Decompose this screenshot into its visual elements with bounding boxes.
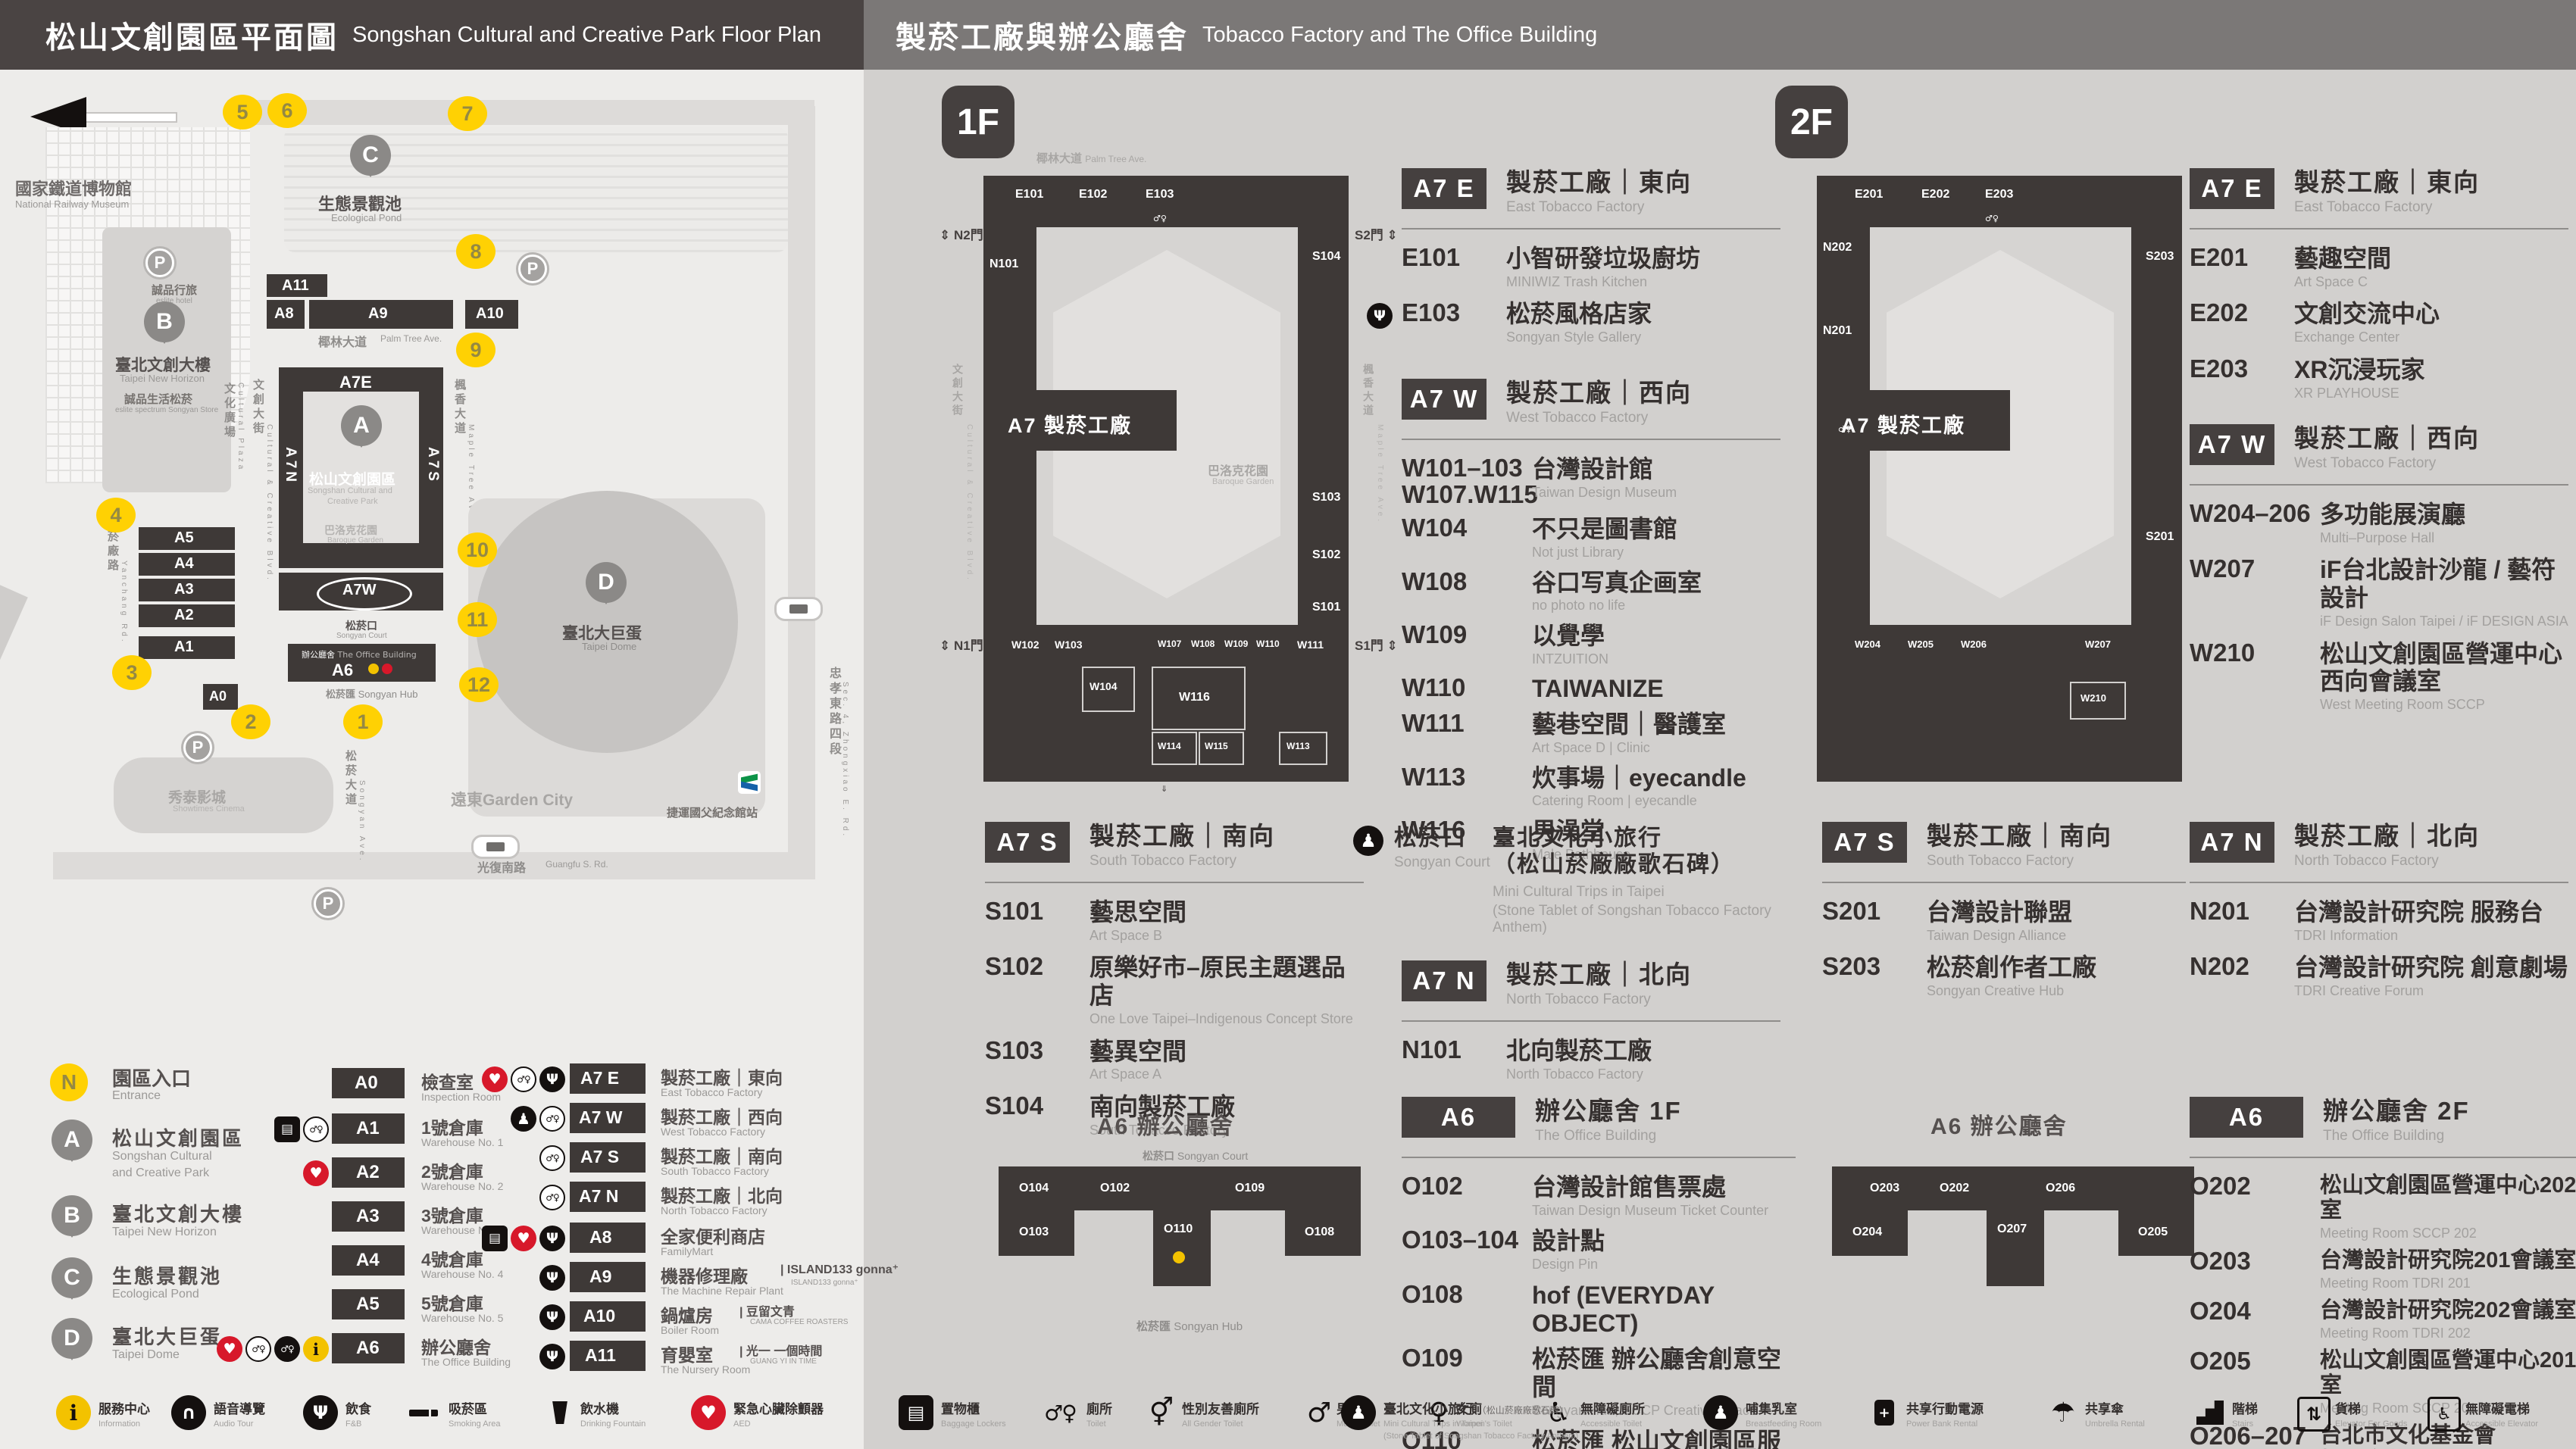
baroque-garden-en: Baroque Garden	[327, 536, 383, 545]
room-label: E203	[1985, 188, 2013, 201]
section-title-en: South Tobacco Factory	[1927, 853, 2112, 870]
directory-item: W111 藝巷空間｜醫護室Art Space D | Clinic	[1402, 710, 1780, 756]
divider	[1822, 882, 2186, 883]
legend-a7n-en: North Tobacco Factory	[661, 1204, 767, 1216]
room-label: O109	[1235, 1182, 1265, 1195]
directory-item: W104 不只是圖書館Not just Library	[1402, 515, 1780, 561]
pin-a: A	[341, 405, 382, 446]
garden-city-label: 遠東Garden City	[451, 788, 573, 810]
directory-item: W109 以覺學INTZUITION	[1402, 622, 1780, 667]
railway-museum-label-en: National Railway Museum	[15, 198, 129, 210]
baggage-lockers-icon	[274, 1116, 300, 1142]
parking-icon: P	[145, 248, 174, 277]
section-badge: A7 E	[1402, 168, 1487, 209]
directory-item: S201 台灣設計聯盟Taiwan Design Alliance	[1822, 898, 2186, 944]
directory-item: S101 藝思空間Art Space B	[985, 898, 1364, 944]
legend-entrance-badge: N	[50, 1063, 88, 1101]
plan2-a7-label: A7 製菸工廠	[1841, 409, 1965, 439]
baggage-lockers-icon	[482, 1226, 508, 1251]
legend-a5-code: A5	[356, 1294, 380, 1315]
plan1-palm-ave: 椰林大道 Palm Tree Ave.	[1036, 150, 1146, 166]
legend-a11-en: The Nursery Room	[661, 1363, 750, 1376]
mini-cultural-trip-icon: ♟	[1341, 1395, 1376, 1430]
strip-label-en: Umbrella Rental	[2085, 1419, 2145, 1429]
room-zh: 藝思空間	[1089, 898, 1186, 926]
strip-label-zh: 貨梯	[2335, 1398, 2361, 1417]
plan2-toilet-icon: ♂♀	[1838, 424, 1852, 434]
building-a7e-label: A7E	[339, 373, 372, 392]
room-en: Art Space A	[1089, 1066, 1186, 1083]
pond-label-en: Ecological Pond	[331, 212, 402, 223]
entrance-8: 8	[456, 234, 496, 269]
strip-label-zh: 緊急心臟除顫器	[733, 1398, 824, 1417]
room-code: N101	[1402, 1037, 1506, 1082]
room-zh: 谷口写真企画室	[1532, 569, 1702, 597]
entrance-1: 1	[343, 704, 383, 739]
cultural-plaza-en: Cultural Plaza	[236, 383, 245, 472]
entrance-9: 9	[456, 333, 496, 367]
zhongxiao-rd-en: Sec. 4, Zhongxiao E. Rd.	[841, 682, 849, 838]
room-zh: 台灣設計研究院201會議室	[2320, 1248, 2576, 1273]
room-en: Exchange Center	[2294, 329, 2440, 346]
audio-tour-icon: ∩	[171, 1395, 206, 1430]
directory-item: S203 松菸創作者工廠Songyan Creative Hub	[1822, 954, 2186, 999]
room-en: Art Space D | Clinic	[1532, 740, 1726, 757]
room-label: O104	[1019, 1182, 1049, 1195]
legend-a10-code: A10	[583, 1306, 615, 1326]
strip-label-zh: 臺北文化小旅行 （松山菸廠廠歌石碑）	[1383, 1398, 1568, 1417]
strip-label-zh: 性別友善廁所	[1182, 1398, 1259, 1417]
bus-stop-icon	[471, 835, 520, 859]
room-label: W204	[1855, 639, 1880, 650]
breastfeeding-room-icon: ♟	[1703, 1395, 1738, 1430]
map-court-en: Songyan Court	[336, 632, 387, 640]
entrance-5: 5	[223, 95, 262, 130]
strip-label-en: Baggage Lockers	[941, 1419, 1006, 1429]
room-code: W207	[2190, 556, 2320, 629]
cultural-trip-icon	[511, 1106, 536, 1132]
room-zh: 台灣設計研究院202會議室	[2320, 1298, 2576, 1323]
divider	[985, 882, 1364, 883]
drinking-fountain-icon	[542, 1395, 577, 1430]
room-en: TDRI Information	[2294, 928, 2543, 945]
legend-a11-zh: 育嬰室	[661, 1341, 713, 1366]
room-en: Art Space C	[2294, 274, 2391, 291]
room-code: O102	[1402, 1173, 1532, 1219]
songyan-ave-en: Songyan Ave.	[358, 780, 366, 863]
room-label: E201	[1855, 188, 1883, 201]
railway-museum-label-zh: 國家鐵道博物館	[15, 176, 132, 200]
legend-a7w-code: A7 W	[579, 1107, 623, 1128]
section-badge: A6	[2190, 1097, 2303, 1138]
toilet-icon	[539, 1145, 565, 1171]
section-title-zh: 製菸工廠｜西向	[1506, 379, 1692, 408]
entrance-12: 12	[459, 667, 499, 702]
legend-a9-code: A9	[589, 1266, 611, 1287]
divider	[1402, 228, 1780, 230]
sccp-label-zh: 松山文創園區	[309, 468, 395, 489]
strip-label-zh: 共享行動電源	[1906, 1398, 1984, 1417]
section-title-zh: 製菸工廠｜南向	[1927, 822, 2112, 851]
plan1-garden-en: Baroque Garden	[1212, 477, 1274, 486]
room-label: W116	[1179, 691, 1210, 704]
room-label: O108	[1305, 1226, 1334, 1239]
room-en: Catering Room | eyecandle	[1532, 793, 1746, 810]
legend-a1-code: A1	[356, 1118, 380, 1139]
cinema-zh: 秀泰影城	[168, 786, 226, 807]
room-code: O204	[2190, 1298, 2320, 1341]
room-code: S203	[1822, 954, 1927, 999]
room-code: S101	[985, 898, 1089, 944]
pin-c: C	[350, 135, 391, 176]
dome-en: Taipei Dome	[582, 641, 636, 652]
aed-icon	[382, 664, 392, 674]
baggage-lockers-icon: ▤	[899, 1395, 933, 1430]
legend-a-en1: Songshan Cultural	[112, 1150, 212, 1163]
room-label: W113	[1286, 741, 1310, 751]
cinema-en: Showtimes Cinema	[173, 804, 245, 814]
room-label: N202	[1823, 241, 1852, 255]
room-label: W102	[1011, 639, 1039, 651]
strip-label-en: Breastfeeding Room	[1746, 1419, 1821, 1429]
a6-1f-hub: 松菸匯 Songyan Hub	[1136, 1318, 1243, 1334]
section-badge: A7 S	[985, 822, 1070, 863]
room-zh: 松山文創園區營運中心201會議室	[2320, 1348, 2576, 1399]
food-icon	[539, 1265, 565, 1291]
legend-c-zh: 生態景觀池	[112, 1261, 222, 1289]
building-a11-label: A11	[282, 277, 309, 295]
room-label: W108	[1191, 639, 1215, 649]
room-code: W104	[1402, 515, 1532, 561]
room-code: E203	[2190, 356, 2294, 401]
room-code: N202	[2190, 954, 2294, 999]
directory-item: N101 北向製菸工廠North Tobacco Factory	[1402, 1037, 1780, 1082]
legend-a4-zh: 4號倉庫	[421, 1245, 483, 1271]
section-badge: A7 W	[1402, 379, 1487, 420]
parking-icon: P	[314, 889, 342, 918]
room-code: O108	[1402, 1282, 1532, 1338]
entrance-7: 7	[448, 96, 487, 131]
room-label: S103	[1312, 491, 1340, 504]
plan1-a7-label: A7 製菸工廠	[1008, 409, 1132, 439]
directory-item: E101 小智研發垃圾廚坊MINIWIZ Trash Kitchen	[1402, 245, 1780, 290]
stairs-icon	[2193, 1395, 2227, 1430]
legend-a7s-icons	[539, 1145, 565, 1171]
legend-a4-code: A4	[356, 1250, 380, 1271]
a6-1f-bar	[999, 1166, 1361, 1210]
information-icon: i	[56, 1395, 91, 1430]
legend-a7s-code: A7 S	[580, 1147, 619, 1167]
room-zh: hof (EVERYDAY OBJECT)	[1532, 1282, 1796, 1338]
room-code: W108	[1402, 569, 1532, 614]
legend-a1-zh: 1號倉庫	[421, 1113, 483, 1139]
room-label: E103	[1146, 188, 1174, 201]
room-en: Taiwan Design Alliance	[1927, 928, 2072, 945]
section-title-en: North Tobacco Factory	[1506, 992, 1692, 1008]
sccp-label-en1: Songshan Cultural and	[308, 486, 392, 495]
room-label: W111	[1297, 639, 1324, 651]
room-en: One Love Taipei–Indigenous Concept Store	[1089, 1011, 1364, 1028]
divider	[1402, 1157, 1796, 1158]
legend-a1-en: Warehouse No. 1	[421, 1136, 503, 1148]
section-title-en: East Tobacco Factory	[1506, 199, 1692, 216]
legend-a7w-zh: 製菸工廠｜西向	[661, 1103, 783, 1129]
a6-1f-court: 松菸口 Songyan Court	[1143, 1148, 1248, 1163]
room-en: TDRI Creative Forum	[2294, 983, 2568, 1000]
toilet-icon	[539, 1185, 565, 1210]
directory-item: O204 台灣設計研究院202會議室Meeting Room TDRI 202	[2190, 1298, 2576, 1341]
toilet-icon	[303, 1116, 329, 1142]
a6-1f-stub	[1153, 1210, 1211, 1286]
room-code: W210	[2190, 640, 2320, 714]
room-label: S102	[1312, 548, 1340, 562]
directory-item: O103–104 設計點Design Pin	[1402, 1227, 1796, 1273]
building-a8-label: A8	[274, 305, 294, 323]
room-label: W114	[1158, 741, 1181, 751]
legend-a8-icons	[482, 1226, 565, 1251]
mens-toilet-icon: ♂	[1302, 1395, 1336, 1430]
legend-a4-en: Warehouse No. 4	[421, 1268, 503, 1280]
section-title-zh: 製菸工廠｜北向	[1506, 960, 1692, 989]
cultural-blvd-zh: 文創大街	[250, 379, 266, 436]
room-code: E101	[1402, 245, 1506, 290]
directory-item: N202 台灣設計研究院 創意劇場TDRI Creative Forum	[2190, 954, 2568, 999]
legend-a3-zh: 3號倉庫	[421, 1201, 483, 1227]
legend-a6-en: The Office Building	[421, 1356, 511, 1368]
goods-elevator-icon: ⇅	[2297, 1397, 2331, 1432]
plan1-cultural-blvd-en: Cultural & Creative Blvd.	[965, 424, 974, 582]
section-a7e-1f: A7 E 製菸工廠｜東向 East Tobacco Factory E101 小…	[1402, 168, 1780, 356]
strip-label-en: AED	[733, 1419, 751, 1429]
legend-a9-sub-en: ISLAND133 gonna⁺	[791, 1279, 858, 1287]
room-label: W107	[1158, 639, 1181, 649]
divider	[2190, 882, 2568, 883]
directory-item: W108 谷口写真企画室no photo no life	[1402, 569, 1780, 614]
room-zh: 台灣設計館售票處	[1532, 1173, 1768, 1201]
parking-icon: P	[183, 733, 212, 762]
section-title-en: The Office Building	[2323, 1128, 2470, 1145]
room-en: Art Space B	[1089, 928, 1186, 945]
legend-d-zh: 臺北大巨蛋	[112, 1322, 222, 1350]
room-zh: 文創交流中心	[2294, 300, 2440, 328]
directory-item: O202 松山文創園區營運中心202會議室Meeting Room SCCP 2…	[2190, 1173, 2576, 1241]
room-label: N101	[989, 258, 1018, 271]
entrance-2: 2	[231, 704, 270, 739]
left-title-en: Songshan Cultural and Creative Park Floo…	[352, 23, 821, 48]
strip-label-zh: 語音導覽	[214, 1398, 265, 1417]
right-title-zh: 製菸工廠與辦公廳舍	[896, 13, 1189, 57]
room-code: W101–103W107.W115	[1402, 455, 1532, 507]
aed-icon	[482, 1066, 508, 1092]
legend-a6-zh: 辦公廳舍	[421, 1333, 491, 1359]
directory-item: O108 hof (EVERYDAY OBJECT)	[1402, 1282, 1796, 1338]
directory-item: W207 iF台北設計沙龍 / 藝符設計iF Design Salon Taip…	[2190, 556, 2568, 629]
plan1-garden-zh: 巴洛克花園	[1208, 461, 1268, 479]
room-zh: 藝異空間	[1089, 1038, 1186, 1066]
toilet-icon	[274, 1336, 300, 1362]
room-en: no photo no life	[1532, 598, 1702, 614]
room-zh: 松山文創園區營運中心202會議室	[2320, 1173, 2576, 1224]
legend-a10-sub: | 豆留文青	[739, 1301, 795, 1319]
room-label: W110	[1256, 639, 1280, 649]
room-label: E101	[1015, 188, 1043, 201]
legend-a0-en: Inspection Room	[421, 1091, 501, 1103]
room-label: O206	[2046, 1182, 2075, 1195]
room-code: W204–206	[2190, 501, 2320, 546]
power-bank-icon: +	[1867, 1395, 1902, 1430]
all-gender-toilet-icon: ⚥	[1144, 1395, 1179, 1430]
section-a7n-2f: A7 N 製菸工廠｜北向 North Tobacco Factory N201 …	[2190, 822, 2568, 1010]
legend-a9-icons	[539, 1265, 565, 1291]
building-a9-label: A9	[368, 305, 388, 323]
strip-label-en: Drinking Fountain	[580, 1419, 646, 1429]
aed-icon	[303, 1160, 329, 1186]
entrance-4: 4	[96, 498, 136, 532]
directory-item: W204–206 多功能展演廳Multi–Purpose Hall	[2190, 501, 2568, 546]
room-zh: XR沉浸玩家	[2294, 356, 2424, 384]
divider	[2190, 228, 2568, 230]
legend-a6-icons	[217, 1336, 329, 1362]
gate-n2: ⇕ N2門	[939, 224, 983, 243]
legend-a8-en: FamilyMart	[661, 1245, 713, 1257]
palm-ave-en: Palm Tree Ave.	[380, 333, 442, 344]
palm-ave-zh: 椰林大道	[318, 332, 367, 350]
gate-s1: S1門 ⇕	[1355, 635, 1398, 654]
plan1-maple-ave-en: Maple Tree Ave.	[1376, 424, 1384, 524]
legend-a7n-code: A7 N	[579, 1186, 618, 1207]
cultural-trip-icon	[1353, 826, 1383, 856]
directory-item: E201 藝趣空間Art Space C	[2190, 245, 2568, 290]
legend-pin-b: B	[52, 1195, 92, 1236]
legend-pin-d: D	[52, 1318, 92, 1359]
left-title-zh: 松山文創園區平面圖	[45, 13, 339, 57]
legend-a11-code: A11	[585, 1345, 616, 1366]
room-label: W104	[1089, 680, 1118, 692]
section-title-zh: 辦公廳舍 1F	[1535, 1097, 1682, 1126]
room-en: Design Pin	[1532, 1257, 1605, 1273]
info-icon	[368, 664, 379, 674]
strip-label-zh: 吸菸區	[449, 1398, 487, 1417]
room-zh: 小智研發垃圾廚坊	[1506, 245, 1700, 273]
food-icon	[539, 1304, 565, 1330]
sccp-label-en2: Creative Park	[327, 497, 378, 506]
strip-label-en: Elevator For Goods	[2335, 1419, 2407, 1429]
room-en: North Tobacco Factory	[1506, 1066, 1652, 1083]
room-en: iF Design Salon Taipei / iF DESIGN ASIA	[2320, 614, 2568, 630]
room-code: S102	[985, 954, 1089, 1027]
strip-label-zh: 服務中心	[98, 1398, 150, 1417]
umbrella-rental-icon: ☂	[2046, 1395, 2080, 1430]
right-title-en: Tobacco Factory and The Office Building	[1202, 23, 1597, 48]
legend-a0-zh: 檢查室	[421, 1068, 474, 1094]
section-badge: A7 W	[2190, 424, 2274, 465]
food-icon: Ψ	[303, 1395, 338, 1430]
legend-a8-zh: 全家便利商店	[661, 1223, 765, 1248]
building-a0-label: A0	[209, 689, 227, 704]
strip-label-zh: 無障礙廁所	[1580, 1398, 1645, 1417]
section-title-en: North Tobacco Factory	[2294, 853, 2480, 870]
legend-a7n-zh: 製菸工廠｜北向	[661, 1182, 783, 1207]
directory-item: W210 松山文創園區營運中心西向會議室West Meeting Room SC…	[2190, 640, 2568, 714]
section-title-zh: 製菸工廠｜南向	[1089, 822, 1275, 851]
accessible-elevator-icon: ♿	[2428, 1397, 2461, 1432]
entrance-10: 10	[458, 532, 497, 567]
right-header: 製菸工廠與辦公廳舍 Tobacco Factory and The Office…	[864, 0, 2576, 70]
room-code: S201	[1822, 898, 1927, 944]
room-zh: 松菸創作者工廠	[1927, 954, 2096, 982]
strip-label-zh: 飲水機	[580, 1398, 619, 1417]
building-a4-label: A4	[174, 555, 194, 573]
eslite-hotel-zh: 誠品行旅	[152, 282, 197, 298]
room-zh: 多功能展演廳	[2320, 501, 2465, 529]
plan1-maple-ave: 楓香大道	[1361, 364, 1376, 418]
legend-a2-zh: 2號倉庫	[421, 1157, 483, 1183]
section-a7s-2f: A7 S 製菸工廠｜南向 South Tobacco Factory S201 …	[1822, 822, 2186, 1010]
legend-b-en: Taipei New Horizon	[112, 1226, 217, 1239]
legend-a9-en: The Machine Repair Plant	[661, 1285, 783, 1297]
toilet-icon: ♂♀	[1043, 1395, 1077, 1430]
maple-ave-zh: 楓香大道	[452, 379, 467, 436]
room-label: O102	[1100, 1182, 1130, 1195]
room-label: S201	[2146, 530, 2174, 544]
section-a7w-2f: A7 W 製菸工廠｜西向 West Tobacco Factory W204–2…	[2190, 424, 2568, 723]
room-en: Not just Library	[1532, 545, 1677, 561]
new-horizon-en: Taipei New Horizon	[120, 373, 205, 384]
room-zh: 松菸匯 辦公廳舍創意空間	[1532, 1345, 1796, 1401]
legend-a7e-en: East Tobacco Factory	[661, 1086, 762, 1098]
room-label: W206	[1961, 639, 1987, 650]
strip-label-en: Toilet	[1086, 1419, 1106, 1429]
legend-a7s-zh: 製菸工廠｜南向	[661, 1142, 783, 1168]
toilet-icon	[539, 1106, 565, 1132]
room-label: O205	[2138, 1226, 2168, 1239]
room-code: O203	[2190, 1248, 2320, 1291]
legend-a2-icons	[303, 1160, 329, 1186]
room-label: O103	[1019, 1226, 1049, 1239]
room-label: O203	[1870, 1182, 1899, 1195]
legend-a7s-en: South Tobacco Factory	[661, 1165, 769, 1177]
directory-item: E103 松菸風格店家Songyan Style Gallery	[1402, 300, 1780, 345]
section-a6-1f: A6 辦公廳舍 1F The Office Building O102 台灣設計…	[1402, 1097, 1796, 1449]
room-label: E102	[1079, 188, 1107, 201]
aed-icon	[511, 1226, 536, 1251]
yanchang-rd-zh: 菸廠路	[105, 530, 120, 573]
room-code: W109	[1402, 622, 1532, 667]
room-zh: 台灣設計館	[1532, 455, 1677, 483]
legend-a3-code: A3	[356, 1206, 380, 1227]
floor-1f-badge: 1F	[942, 86, 1014, 158]
strip-label-en: Information	[98, 1419, 140, 1429]
room-en: Songyan Style Gallery	[1506, 329, 1652, 346]
directory-item: W113 炊事場｜eyecandleCatering Room | eyecan…	[1402, 764, 1780, 810]
floor-2f-badge: 2F	[1775, 86, 1848, 158]
legend-a7n-icons	[539, 1185, 565, 1210]
strip-label-en: Accessible Toilet	[1580, 1419, 1642, 1429]
room-code: S104	[985, 1093, 1089, 1138]
strip-label-en: F&B	[345, 1419, 361, 1429]
strip-label-en: Accessible Elevator	[2465, 1419, 2538, 1429]
songyan-ave-zh: 松菸大道	[342, 750, 358, 807]
directory-item: E203 XR沉浸玩家XR PLAYHOUSE	[2190, 356, 2568, 401]
room-zh: 台灣設計聯盟	[1927, 898, 2072, 926]
legend-a8-code: A8	[589, 1227, 611, 1248]
gate-n1: ⇕ N1門	[939, 635, 983, 654]
room-zh: 不只是圖書館	[1532, 515, 1677, 543]
building-a6-label: A6	[332, 660, 353, 680]
legend-pin-c: C	[52, 1257, 92, 1298]
section-title-zh: 製菸工廠｜東向	[2294, 168, 2480, 197]
building-a3-label: A3	[174, 581, 194, 598]
